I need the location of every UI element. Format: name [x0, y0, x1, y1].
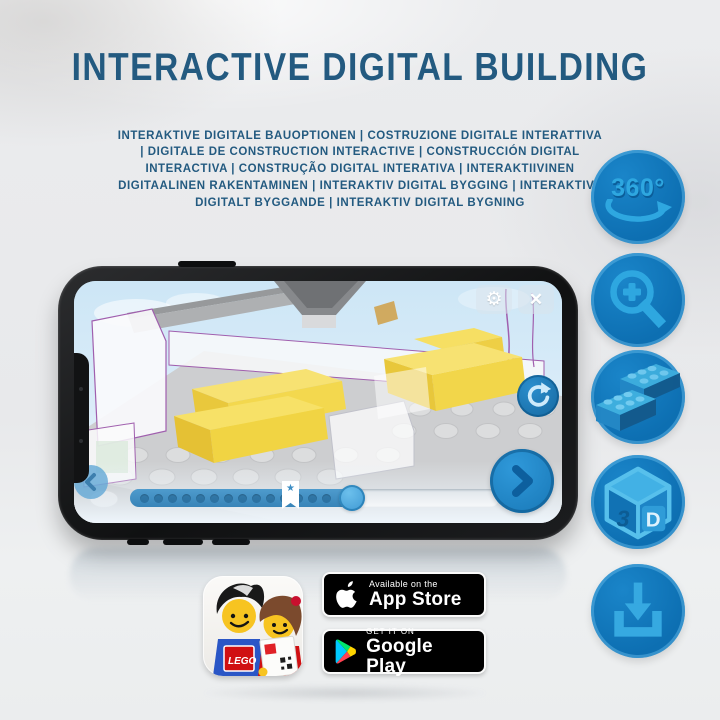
badges-reflection [200, 684, 490, 702]
camera-dot [79, 387, 83, 391]
360-degrees-label: 360° [611, 177, 665, 199]
lego-3d-model-viewport[interactable] [74, 281, 562, 523]
phone-mute-switch [127, 539, 149, 545]
build-progress-bar[interactable]: ★ [130, 489, 500, 507]
3d-cube-icon: 3 D [597, 461, 679, 543]
settings-button[interactable]: ⚙ [476, 285, 512, 314]
app-screen: ⚙ ✕ ★ [74, 281, 562, 523]
feature-download-badge [591, 564, 685, 658]
feature-zoom-badge [591, 253, 685, 347]
lego-app-icon[interactable]: LEGO [203, 576, 303, 676]
cube-3-label: 3 [617, 505, 630, 531]
close-button[interactable]: ✕ [518, 285, 554, 314]
progress-slider-handle[interactable] [339, 485, 365, 511]
lego-brick-icon [596, 361, 680, 433]
phone-power-button [178, 261, 236, 267]
google-play-label: Google Play [366, 637, 474, 677]
chevron-right-icon [507, 463, 537, 499]
next-step-button[interactable] [490, 449, 554, 513]
google-play-badge[interactable]: GET IT ON Google Play [322, 629, 486, 674]
progress-fill [130, 489, 355, 507]
app-store-label: App Store [369, 590, 462, 610]
page-title: INTERACTIVE DIGITAL BUILDING [14, 46, 705, 90]
gear-icon: ⚙ [485, 288, 502, 311]
phone-notch [74, 353, 89, 483]
phone-reflection [70, 548, 566, 602]
app-store-badge[interactable]: Available on the App Store [322, 572, 486, 617]
google-play-icon [334, 638, 357, 665]
speaker-dot [79, 439, 83, 443]
phone-volume-down-button [212, 539, 250, 545]
rotate-icon [523, 381, 553, 411]
download-icon [602, 576, 674, 646]
apple-icon [334, 580, 360, 610]
cube-d-label: D [646, 508, 661, 531]
phone-volume-up-button [163, 539, 203, 545]
feature-brick-badge [591, 350, 685, 444]
lego-logo-text: LEGO [228, 656, 257, 667]
rotate-view-button[interactable] [517, 375, 559, 417]
feature-360-rotation-badge: 360° [591, 150, 685, 244]
close-icon: ✕ [529, 290, 543, 310]
minifigures-artwork: LEGO [203, 576, 303, 676]
feature-3d-badge: 3 D [591, 455, 685, 549]
rotate-arrow-icon [603, 199, 673, 223]
smartphone: ⚙ ✕ ★ [58, 266, 578, 540]
multilingual-subtitle: INTERAKTIVE DIGITALE BAUOPTIONEN | COSTR… [115, 128, 605, 212]
magnifier-plus-icon [601, 263, 675, 337]
